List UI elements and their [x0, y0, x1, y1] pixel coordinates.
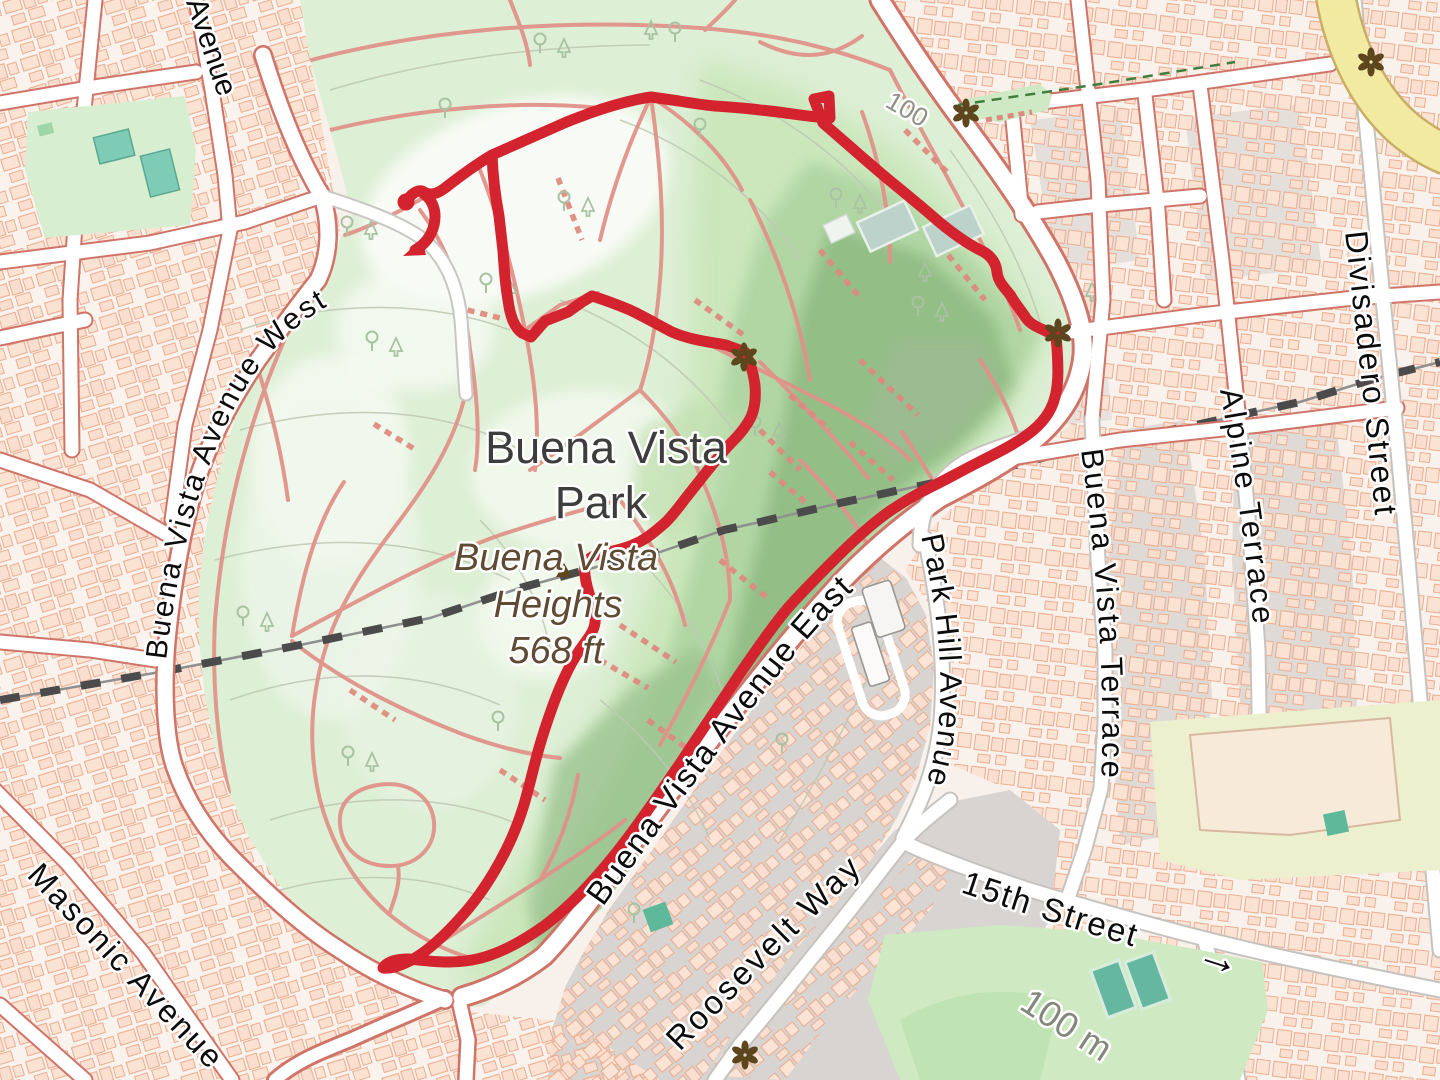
svg-text:Buena Vista: Buena Vista	[485, 422, 728, 473]
svg-text:Park: Park	[555, 477, 648, 528]
svg-text:568 ft: 568 ft	[508, 630, 605, 672]
svg-text:Heights: Heights	[494, 584, 623, 626]
svg-text:Buena Vista: Buena Vista	[454, 537, 658, 579]
